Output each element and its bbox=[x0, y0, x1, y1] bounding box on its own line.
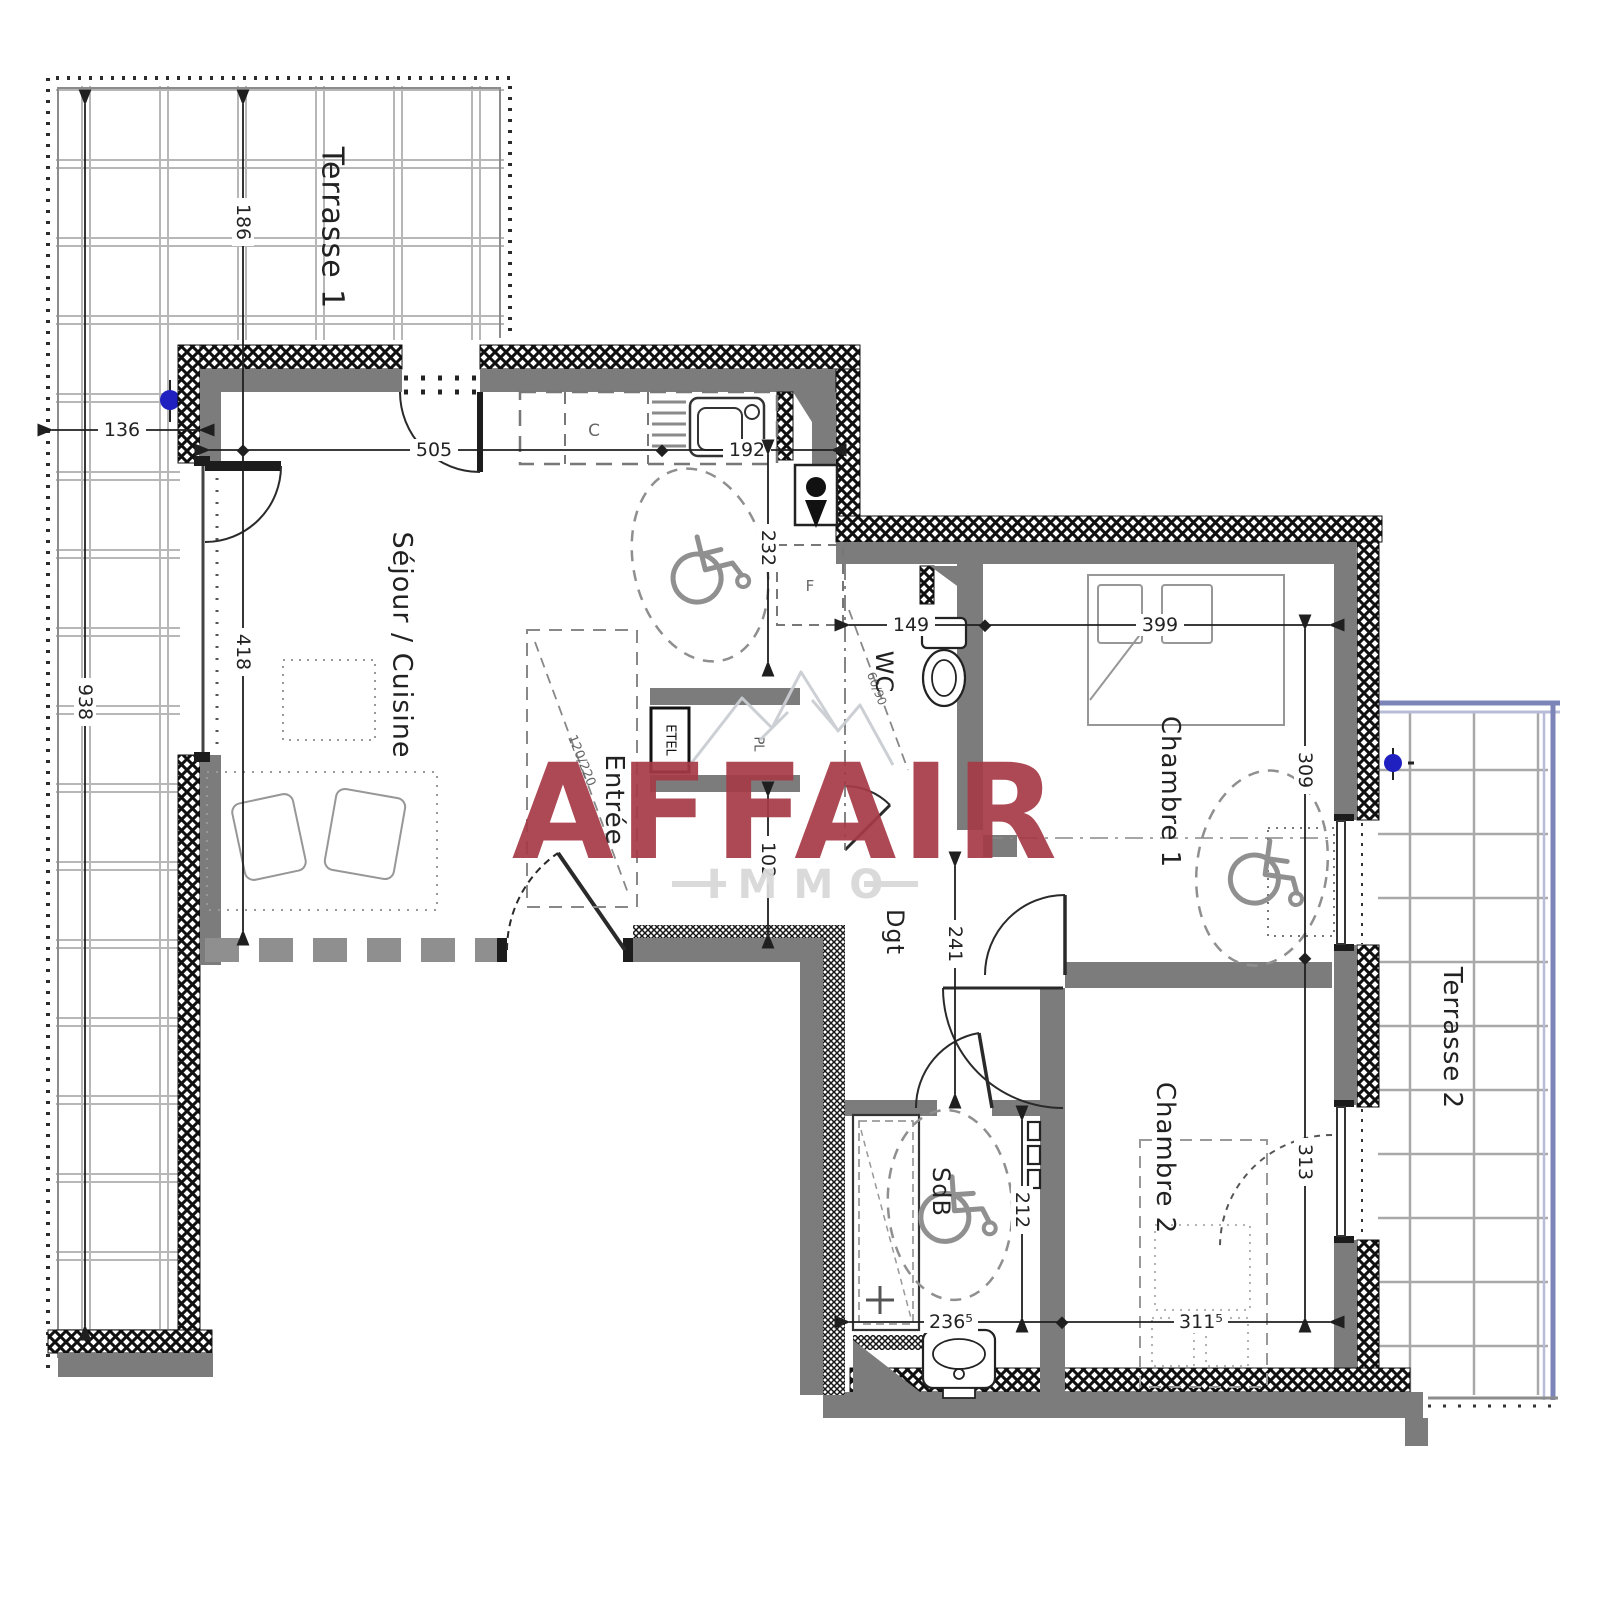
svg-text:938: 938 bbox=[74, 684, 96, 720]
label-terrasse1: Terrasse 1 bbox=[315, 146, 350, 310]
floor-plan: C F 120/220 ETEL PL 60/90 bbox=[0, 0, 1600, 1600]
svg-text:192: 192 bbox=[729, 439, 765, 461]
svg-text:212: 212 bbox=[1011, 1192, 1033, 1228]
wall-left-lower bbox=[200, 755, 221, 965]
dim-kitchen-width: 192 bbox=[723, 439, 771, 461]
dim-wc-width: 149 bbox=[887, 614, 935, 636]
dim-chambre2-width: 311⁵ bbox=[1174, 1311, 1228, 1333]
svg-text:136: 136 bbox=[104, 419, 140, 441]
label-chambre2: Chambre 2 bbox=[1150, 1082, 1180, 1234]
dim-sdb-width: 236⁵ bbox=[924, 1311, 978, 1333]
svg-text:418: 418 bbox=[232, 634, 254, 670]
wall-left-upper bbox=[200, 369, 221, 463]
wall-top-right bbox=[480, 369, 860, 392]
wall-closet-top bbox=[650, 688, 800, 705]
dim-sejour-width: 505 bbox=[410, 439, 458, 461]
wall-bottom-step bbox=[1405, 1418, 1428, 1446]
dim-sdb-height: 212 bbox=[1011, 1186, 1033, 1234]
dim-t1-width: 186 bbox=[232, 198, 254, 246]
wall-sdb-top-b bbox=[992, 1100, 1040, 1116]
wall-right-2 bbox=[1334, 945, 1357, 1105]
wall-right-3 bbox=[1334, 1240, 1357, 1370]
wall-right-hatch-3 bbox=[1357, 1240, 1379, 1372]
svg-text:311⁵: 311⁵ bbox=[1179, 1311, 1223, 1333]
wall-right-hatch-1 bbox=[1357, 542, 1379, 820]
dim-chambre1-height: 309 bbox=[1294, 746, 1316, 794]
dim-dgt-height: 241 bbox=[944, 920, 966, 968]
svg-text:241: 241 bbox=[944, 926, 966, 962]
label-sejour: Séjour / Cuisine bbox=[387, 531, 418, 758]
label-dgt: Dgt bbox=[881, 909, 909, 955]
dim-t1-offset: 136 bbox=[98, 419, 146, 441]
terrace-1-bottom-wall-hatch bbox=[48, 1330, 212, 1353]
wall-sejour-bottom bbox=[633, 938, 823, 962]
wall-right-1 bbox=[1334, 564, 1357, 820]
label-sdb: SdB bbox=[927, 1167, 955, 1217]
dim-chambre2-height: 313 bbox=[1294, 1138, 1316, 1186]
svg-text:309: 309 bbox=[1294, 752, 1316, 788]
terrace-1-bottom-wall bbox=[58, 1353, 213, 1377]
label-wc: WC bbox=[870, 651, 898, 694]
svg-text:232: 232 bbox=[757, 530, 779, 566]
svg-text:313: 313 bbox=[1294, 1144, 1316, 1180]
svg-text:149: 149 bbox=[893, 614, 929, 636]
wall-ch1-bottom bbox=[1065, 962, 1332, 988]
wall-dgt-ch2 bbox=[1040, 988, 1065, 1392]
wall-kitchen-hatch bbox=[836, 369, 860, 516]
wall-north-ch1 bbox=[836, 542, 1356, 564]
hob-label: C bbox=[588, 421, 600, 441]
wall-wc-corner-strip bbox=[920, 566, 934, 604]
wall-left-hatch-lower bbox=[178, 755, 200, 1330]
watermark-tagline: IMMO bbox=[707, 862, 900, 908]
wall-right-hatch-2 bbox=[1357, 945, 1379, 1107]
svg-text:236⁵: 236⁵ bbox=[929, 1311, 973, 1333]
wall-sdb-corner-strip bbox=[853, 1335, 923, 1350]
washbasin-icon bbox=[923, 1330, 995, 1398]
svg-text:186: 186 bbox=[232, 204, 254, 240]
dim-kitchen-height: 232 bbox=[757, 524, 779, 572]
wall-left-hatch-upper bbox=[178, 345, 200, 463]
wall-bottom bbox=[823, 1392, 1423, 1418]
svg-text:505: 505 bbox=[416, 439, 452, 461]
dim-chambre1-width: 399 bbox=[1136, 614, 1184, 636]
wall-top-hatch-right bbox=[480, 345, 860, 369]
wall-sdb-top-a bbox=[845, 1100, 937, 1116]
wall-north-ch1-hatch bbox=[836, 516, 1382, 542]
dim-sejour-height: 418 bbox=[232, 628, 254, 676]
dim-t1-height: 938 bbox=[74, 678, 96, 726]
wall-dgt-left bbox=[800, 938, 823, 1395]
svg-text:399: 399 bbox=[1142, 614, 1178, 636]
label-terrasse2: Terrasse 2 bbox=[1437, 966, 1467, 1109]
label-chambre1: Chambre 1 bbox=[1155, 716, 1185, 868]
wall-dgt-left-strip bbox=[823, 938, 845, 1395]
water-heater-icon bbox=[795, 465, 837, 528]
shower-icon bbox=[853, 1115, 919, 1330]
towel-rail-icon bbox=[1028, 1122, 1040, 1188]
wall-top-hatch-left bbox=[180, 345, 402, 369]
fridge-label: F bbox=[806, 577, 815, 595]
wall-sejour-bottom-strip bbox=[633, 925, 845, 938]
